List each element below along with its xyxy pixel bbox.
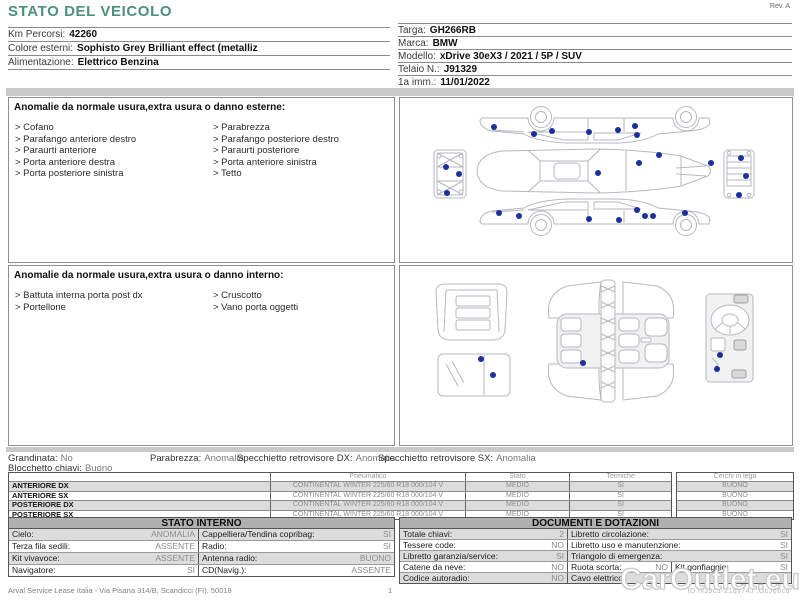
revision-label: Rev. A <box>770 3 790 10</box>
field-label: Targa: <box>398 25 426 36</box>
label-value-cell: Tessere code:NO <box>400 540 567 550</box>
interior-damage-diagram <box>399 265 793 446</box>
anomaly-item: > Porta anteriore sinistra <box>213 157 394 169</box>
status-label: Specchietto retrovisore SX: <box>378 453 493 464</box>
exterior-damage-diagram <box>399 97 793 263</box>
interior-anomalies-list-left: > Battuta interna porta post dx> Portell… <box>15 290 213 313</box>
cell-label: Triangolo di emergenza: <box>571 551 662 561</box>
cell-label: Cavo elettrico: <box>571 573 625 583</box>
status-item: Specchietto retrovisore SX:Anomalia <box>378 453 536 464</box>
field-value: Sophisto Grey Brilliant effect (metalliz <box>77 43 258 54</box>
status-item: Specchietto retrovisore DX:Anomalia <box>237 453 395 464</box>
tyres-column-header: Pneumatico <box>270 473 464 481</box>
field-label: Modello: <box>398 51 436 62</box>
label-value-cell: Navigatore:SI <box>9 565 198 576</box>
label-value-cell: Kit vivavoce:ASSENTE <box>9 553 198 564</box>
tyres-column-header <box>9 473 270 481</box>
damage-marker-dot <box>714 366 720 372</box>
vehicle-field-row: Alimentazione:Elettrico Benzina <box>8 56 390 70</box>
damage-marker-dot <box>636 160 642 166</box>
field-label: Alimentazione: <box>8 57 74 68</box>
cell-value: NO <box>551 562 564 572</box>
field-value: 42260 <box>69 29 97 40</box>
tyres-column-header: Termiche <box>569 473 671 481</box>
interior-state-header: STATO INTERNO <box>8 517 395 528</box>
tyre-state: MEDIO <box>465 501 570 510</box>
exterior-anomalies-title: Anomalie da normale usura,extra usura o … <box>9 98 394 113</box>
label-value-cell: Cappelliera/Tendina copribag:SI <box>198 529 394 540</box>
damage-marker-dot <box>616 217 622 223</box>
cell-value: ASSENTE <box>351 565 391 576</box>
anomaly-item: > Parabrezza <box>213 122 394 134</box>
tyre-spec: CONTINENTAL WINTER 225/60 R18 000/104 V <box>270 482 464 491</box>
footer-address: Arval Service Lease Italia - Via Pisana … <box>8 586 232 595</box>
cell-value: NO <box>551 540 564 550</box>
cell-value: NO <box>551 573 564 583</box>
tyre-row: ANTERIORE SXCONTINENTAL WINTER 225/60 R1… <box>9 491 671 501</box>
anomaly-item: > Porta posteriore sinistra <box>15 168 213 180</box>
table-row: Cielo:ANOMALIACappelliera/Tendina coprib… <box>9 529 394 540</box>
tyre-thermal: SI <box>569 501 671 510</box>
anomaly-item: > Tetto <box>213 168 394 180</box>
damage-marker-dot <box>490 372 496 378</box>
cell-label: Cielo: <box>12 529 34 540</box>
tyre-state: MEDIO <box>465 482 570 491</box>
tyres-column-header: Stato <box>465 473 570 481</box>
field-value: GH266RB <box>430 25 476 36</box>
damage-marker-dot <box>496 210 502 216</box>
table-row: Libretto garanzia/service:SITriangolo di… <box>400 550 791 561</box>
cell-label: Catene da neve: <box>403 562 465 572</box>
cell-value: SI <box>187 565 195 576</box>
dashboard-view <box>706 294 753 382</box>
damage-marker-dot <box>650 213 656 219</box>
cell-label: Antenna radio: <box>202 553 257 564</box>
tyres-table-header: PneumaticoStatoTermiche <box>9 473 671 481</box>
anomaly-item: > Portellone <box>15 302 213 314</box>
status-item: Parabrezza:Anomalia <box>150 453 244 464</box>
tyre-position: ANTERIORE DX <box>9 482 270 491</box>
label-value-cell: Catene da neve:NO <box>400 562 567 572</box>
field-value: J91329 <box>444 64 477 75</box>
damage-marker-dot <box>549 128 555 134</box>
field-label: Marca: <box>398 38 429 49</box>
divider-band-bottom <box>6 447 794 452</box>
cell-label: Libretto garanzia/service: <box>403 551 498 561</box>
car-top-view <box>477 149 711 193</box>
damage-marker-dot <box>443 164 449 170</box>
cell-label: Navigatore: <box>12 565 55 576</box>
caroutlet-watermark: CarOutlet.eu <box>620 563 800 597</box>
cell-value: 2 <box>559 529 564 539</box>
anomaly-item: > Porta anteriore destra <box>15 157 213 169</box>
damage-marker-dot <box>634 207 640 213</box>
cell-value: SI <box>556 551 564 561</box>
interior-state-table: STATO INTERNO Cielo:ANOMALIACappelliera/… <box>8 517 395 577</box>
vehicle-summary-left: Km Percorsi:42260Colore esterni:Sophisto… <box>8 27 390 70</box>
cell-value: SI <box>780 551 788 561</box>
interior-anomalies-title: Anomalie da normale usura,extra usura o … <box>9 266 394 281</box>
status-label: Specchietto retrovisore DX: <box>237 453 353 464</box>
vehicle-field-row: Telaio N.:J91329 <box>398 63 792 76</box>
tyres-table: PneumaticoStatoTermicheANTERIORE DXCONTI… <box>8 472 672 520</box>
anomaly-item: > Vano porta oggetti <box>213 302 394 314</box>
damage-marker-dot <box>632 123 638 129</box>
damage-marker-dot <box>580 360 586 366</box>
vehicle-field-row: Colore esterni:Sophisto Grey Brilliant e… <box>8 42 390 56</box>
cell-label: Totale chiavi: <box>403 529 452 539</box>
cell-value: ASSENTE <box>155 553 195 564</box>
vehicle-condition-report: STATO DEL VEICOLO Rev. A Km Percorsi:422… <box>0 0 800 600</box>
documents-equipment-header: DOCUMENTI E DOTAZIONI <box>399 517 792 528</box>
cell-label: Terza fila sedili: <box>12 541 70 552</box>
cell-value: SI <box>780 540 788 550</box>
car-side-view-top <box>480 107 710 144</box>
cell-value: BUONO <box>360 553 391 564</box>
cell-label: Ruota scorta: <box>571 562 622 572</box>
vehicle-field-row: Targa:GH266RB <box>398 24 792 37</box>
exterior-anomalies-panel: Anomalie da normale usura,extra usura o … <box>8 97 395 263</box>
anomaly-item: > Paraurti posteriore <box>213 145 394 157</box>
status-label: Parabrezza: <box>150 453 201 464</box>
cell-label: CD(Navig.): <box>202 565 246 576</box>
table-row: Kit vivavoce:ASSENTEAntenna radio:BUONO <box>9 552 394 564</box>
label-value-cell: Totale chiavi:2 <box>400 529 567 539</box>
label-value-cell: Cielo:ANOMALIA <box>9 529 198 540</box>
tyre-position: POSTERIORE DX <box>9 501 270 510</box>
cell-label: Tessere code: <box>403 540 456 550</box>
anomaly-item: > Cruscotto <box>213 290 394 302</box>
damage-marker-dot <box>516 213 522 219</box>
damage-marker-dot <box>478 356 484 362</box>
damage-marker-dot <box>682 210 688 216</box>
tyre-position: ANTERIORE SX <box>9 492 270 501</box>
interior-anomalies-list-right: > Cruscotto> Vano porta oggetti <box>213 290 394 313</box>
cell-value: SI <box>383 529 391 540</box>
label-value-cell: Libretto circolazione:SI <box>567 529 791 539</box>
damage-marker-dot <box>595 170 601 176</box>
damage-marker-dot <box>738 155 744 161</box>
anomaly-item: > Paraurti anteriore <box>15 145 213 157</box>
exterior-anomalies-list-right: > Parabrezza> Parafango posteriore destr… <box>213 122 394 180</box>
vehicle-field-row: Km Percorsi:42260 <box>8 28 390 42</box>
tyre-spec: CONTINENTAL WINTER 225/60 R18 000/104 V <box>270 501 464 510</box>
label-value-cell: Terza fila sedili:ASSENTE <box>9 541 198 552</box>
status-summary-line: Grandinata:NoParabrezza:AnomaliaSpecchie… <box>0 453 800 463</box>
field-label: Km Percorsi: <box>8 29 65 40</box>
table-row: Terza fila sedili:ASSENTERadio:SI <box>9 540 394 552</box>
cell-value: ANOMALIA <box>151 529 195 540</box>
cell-value: ASSENTE <box>155 541 195 552</box>
label-value-cell: Codice autoradio:NO <box>400 573 567 583</box>
divider-band-top <box>6 88 794 96</box>
vehicle-summary-right: Targa:GH266RBMarca:BMWModello:xDrive 30e… <box>398 23 792 89</box>
field-value: BMW <box>433 38 458 49</box>
status-value: Anomalia <box>496 453 536 464</box>
damage-marker-dot <box>717 352 723 358</box>
damage-marker-dot <box>736 192 742 198</box>
anomaly-item: > Parafango anteriore destro <box>15 134 213 146</box>
damage-marker-dot <box>531 131 537 137</box>
damage-marker-dot <box>656 152 662 158</box>
damage-marker-dot <box>634 132 640 138</box>
footer-page-number: 1 <box>388 586 392 595</box>
damage-marker-dot <box>444 190 450 196</box>
field-label: 1a imm.: <box>398 77 436 88</box>
tyre-spec: CONTINENTAL WINTER 225/60 R18 000/104 V <box>270 492 464 501</box>
vehicle-field-row: Marca:BMW <box>398 37 792 50</box>
anomaly-item: > Cofano <box>15 122 213 134</box>
table-row: Totale chiavi:2Libretto circolazione:SI <box>400 529 791 539</box>
tyre-row: ANTERIORE DXCONTINENTAL WINTER 225/60 R1… <box>9 481 671 491</box>
cell-value: SI <box>780 529 788 539</box>
cell-label: Codice autoradio: <box>403 573 470 583</box>
field-value: xDrive 30eX3 / 2021 / 5P / SUV <box>440 51 582 62</box>
cell-label: Libretto uso e manutenzione: <box>571 540 681 550</box>
field-value: Elettrico Benzina <box>78 57 159 68</box>
table-row: Tessere code:NOLibretto uso e manutenzio… <box>400 539 791 550</box>
car-side-view-bottom <box>480 199 710 236</box>
damage-marker-dot <box>586 129 592 135</box>
cell-label: Kit vivavoce: <box>12 553 60 564</box>
interior-anomalies-panel: Anomalie da normale usura,extra usura o … <box>8 265 395 446</box>
tyre-state: MEDIO <box>465 492 570 501</box>
alloy-wheel-state: BUONO <box>677 500 793 510</box>
damage-marker-dot <box>708 160 714 166</box>
damage-marker-dot <box>586 216 592 222</box>
damage-marker-dot <box>456 171 462 177</box>
tyre-thermal: SI <box>569 482 671 491</box>
alloy-wheels-header: Cerchi in lega <box>677 473 793 481</box>
label-value-cell: Antenna radio:BUONO <box>198 553 394 564</box>
alloy-wheel-state: BUONO <box>677 481 793 491</box>
cell-value: SI <box>383 541 391 552</box>
label-value-cell: Radio:SI <box>198 541 394 552</box>
cabin-plan-view <box>548 280 673 402</box>
label-value-cell: Libretto uso e manutenzione:SI <box>567 540 791 550</box>
seat-top-view <box>436 284 507 340</box>
label-value-cell: Libretto garanzia/service:SI <box>400 551 567 561</box>
anomaly-item: > Parafango posteriore destro <box>213 134 394 146</box>
field-label: Colore esterni: <box>8 43 73 54</box>
field-value: 11/01/2022 <box>440 77 490 88</box>
cell-label: Radio: <box>202 541 227 552</box>
label-value-cell: Triangolo di emergenza:SI <box>567 551 791 561</box>
damage-marker-dot <box>491 124 497 130</box>
cell-label: Libretto circolazione: <box>571 529 649 539</box>
alloy-wheels-table: Cerchi in legaBUONOBUONOBUONOBUONO <box>676 472 794 520</box>
anomaly-item: > Battuta interna porta post dx <box>15 290 213 302</box>
damage-marker-dot <box>642 213 648 219</box>
damage-marker-dot <box>615 127 621 133</box>
label-value-cell: CD(Navig.):ASSENTE <box>198 565 394 576</box>
vehicle-field-row: Modello:xDrive 30eX3 / 2021 / 5P / SUV <box>398 50 792 63</box>
alloy-wheel-state: BUONO <box>677 491 793 501</box>
tyre-row: POSTERIORE DXCONTINENTAL WINTER 225/60 R… <box>9 500 671 510</box>
exterior-anomalies-list-left: > Cofano> Parafango anteriore destro> Pa… <box>15 122 213 180</box>
damage-marker-dot <box>743 173 749 179</box>
table-row: Navigatore:SICD(Navig.):ASSENTE <box>9 564 394 576</box>
page-title: STATO DEL VEICOLO <box>8 3 172 20</box>
tyre-thermal: SI <box>569 492 671 501</box>
tailgate-panel-view <box>438 354 510 396</box>
cell-label: Cappelliera/Tendina copribag: <box>202 529 314 540</box>
field-label: Telaio N.: <box>398 64 440 75</box>
